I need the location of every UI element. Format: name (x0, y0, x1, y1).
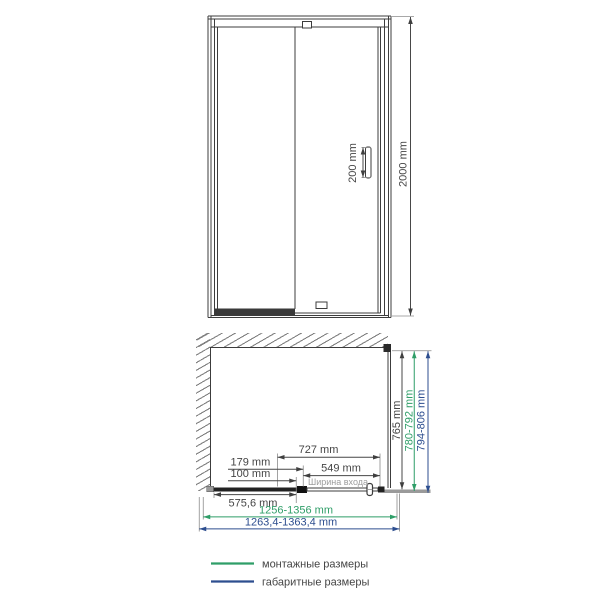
bottom-reference-bar (385, 489, 431, 493)
depth-dimension-label: 765 mm (391, 401, 403, 441)
drawing-canvas: 200 mm 2000 mm (0, 0, 600, 600)
depth-dimensions: 765 mm 780-792 mm 794-806 mm (391, 351, 432, 493)
entrance-width-caption: Ширина входа (308, 477, 368, 487)
technical-drawing-page: 200 mm 2000 mm (0, 0, 600, 600)
handle-dimension-label: 200 mm (347, 143, 359, 183)
pivot-offset-dimension-label: 179 mm (231, 457, 271, 469)
door-handle (366, 147, 372, 178)
legend-mounting-label: монтажные размеры (262, 559, 368, 571)
fixed-panel-bottom-rail (215, 309, 295, 316)
height-dimension: 2000 mm (392, 17, 414, 317)
width-mounting-dimension-label: 1256-1356 mm (259, 505, 333, 517)
bottom-pivot-hinge (316, 302, 327, 309)
legend: монтажные размеры габаритные размеры (211, 559, 369, 589)
fixed-panel-plan (214, 487, 308, 491)
depth-mounting-dimension-label: 780-792 mm (404, 390, 416, 452)
pivot-inset-dimension-label: 100 mm (231, 468, 271, 480)
wall-profile-top-right (384, 344, 392, 352)
handle-dimension: 200 mm (347, 143, 371, 183)
pivot-block (297, 486, 307, 493)
depth-overall-dimension-label: 794-806 mm (416, 390, 428, 452)
wall-profile-bottom-left (207, 486, 214, 492)
door-assembly-dimension-label: 727 mm (299, 444, 339, 456)
corner-profile (378, 486, 385, 492)
width-overall-dimension-label: 1263,4-1363,4 mm (245, 517, 337, 529)
top-pivot-hinge (303, 22, 312, 29)
front-view-drawing (208, 16, 391, 318)
legend-overall-label: габаритные размеры (262, 577, 369, 589)
height-dimension-label: 2000 mm (398, 141, 410, 187)
entrance-width-dimension-label: 549 mm (321, 463, 361, 475)
